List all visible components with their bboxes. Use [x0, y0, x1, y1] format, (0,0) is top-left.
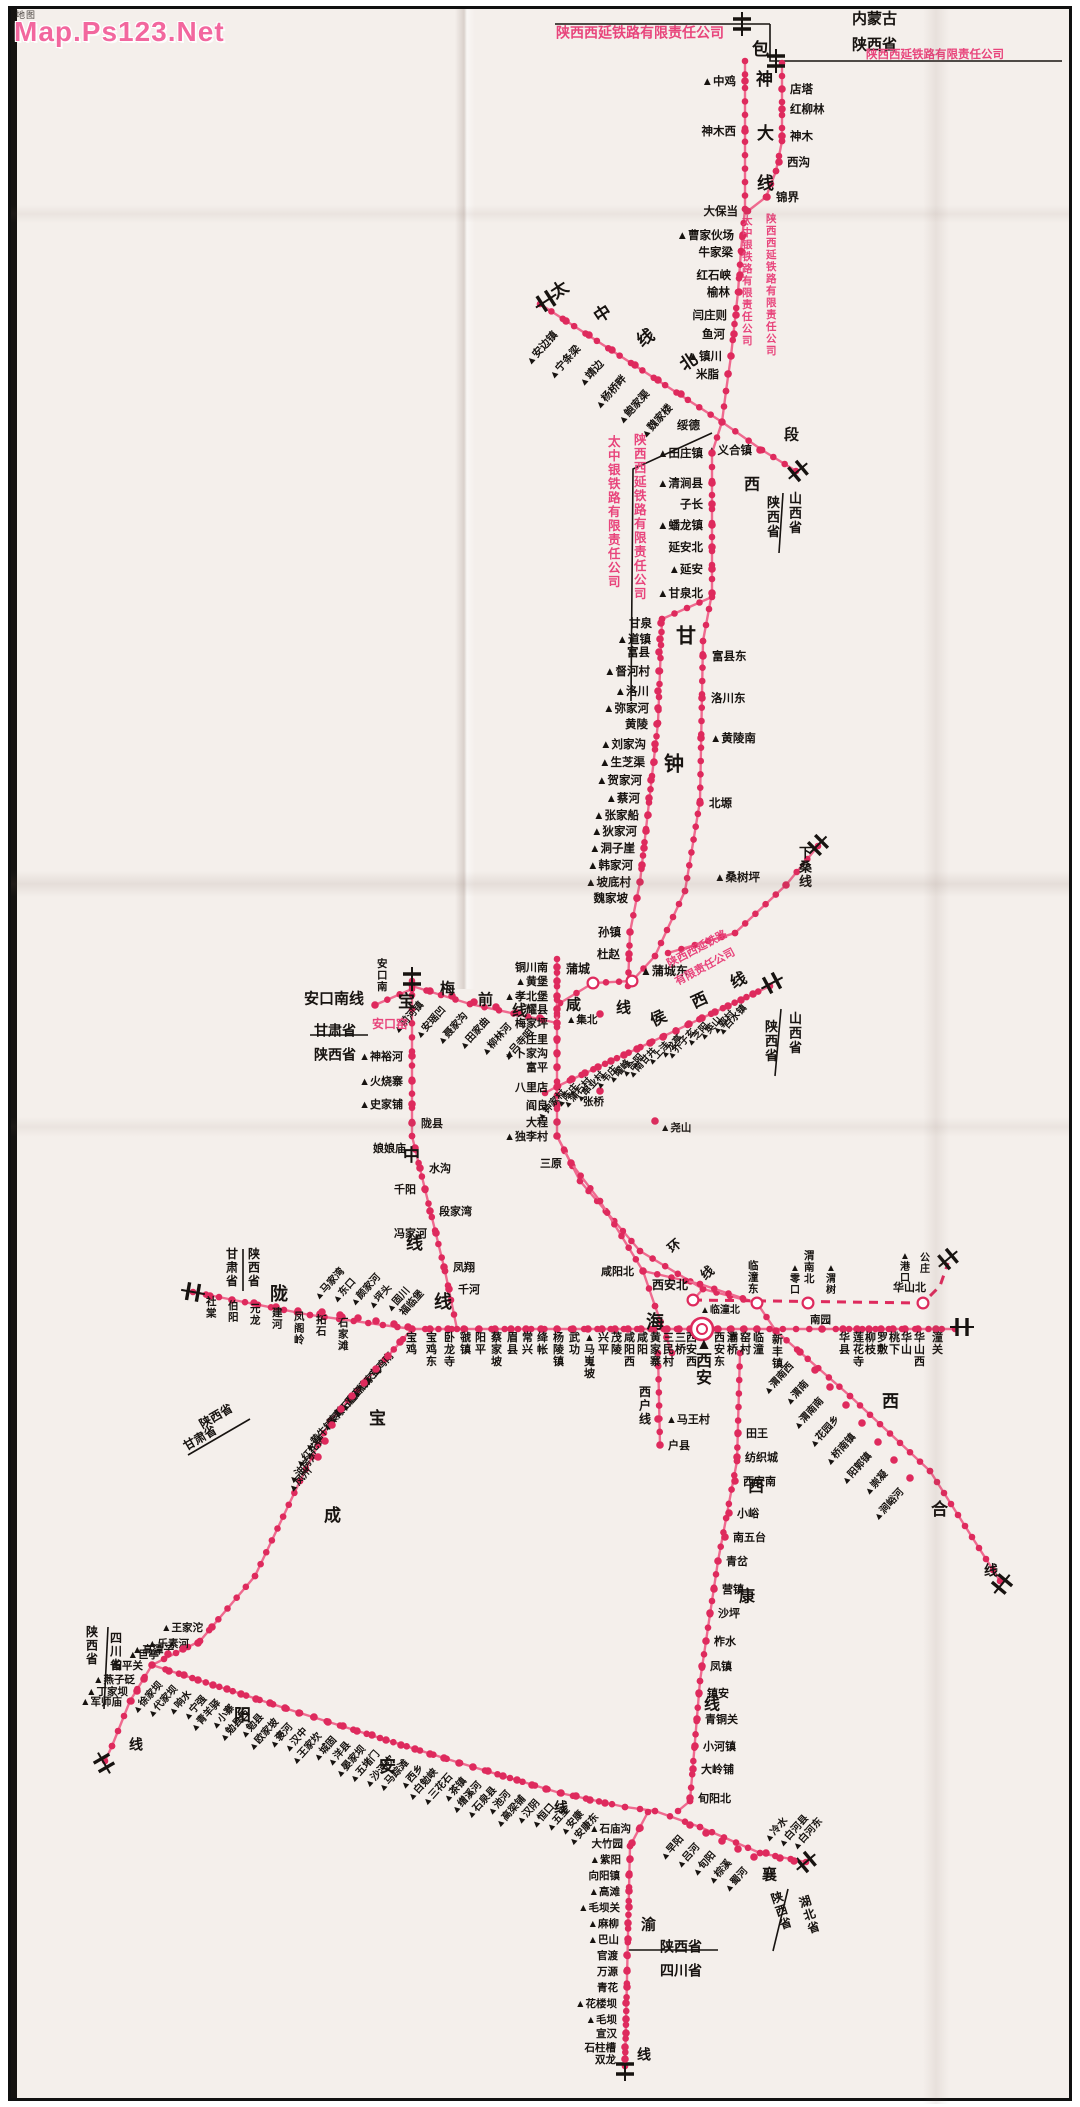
station-dot	[368, 1731, 376, 1739]
station-label: ▲田庄镇	[657, 446, 703, 460]
station-dot	[440, 1263, 448, 1271]
station-label: 旬阳北	[697, 1791, 731, 1805]
rail-bead	[435, 1241, 442, 1248]
rail-bead	[626, 942, 633, 949]
station-dot	[782, 881, 790, 889]
station-label: ▲督河村	[604, 664, 650, 678]
rail-bead	[649, 1255, 656, 1262]
station-dot	[890, 1456, 898, 1464]
rail-bead	[697, 1281, 704, 1288]
station-dot	[656, 1441, 664, 1449]
rail-bead	[662, 382, 669, 389]
station-dot	[318, 1308, 326, 1316]
station-dot	[842, 1401, 850, 1409]
station-dot	[778, 85, 786, 93]
station-label: 南园	[810, 1313, 831, 1326]
rail-bead	[955, 1512, 962, 1519]
station-dot	[553, 963, 561, 971]
rail-bead	[409, 1062, 416, 1069]
rail-bead	[684, 875, 691, 882]
station-label: 石家滩	[337, 1317, 349, 1352]
station-dot	[763, 193, 771, 201]
map-label: 湖北省	[796, 1892, 821, 1936]
station-dot	[622, 2029, 630, 2037]
station-label: 甘泉	[629, 616, 652, 630]
rail-bead	[773, 891, 780, 898]
station-dot	[281, 1704, 289, 1712]
station-label: 八里店	[514, 1080, 548, 1094]
station-dot	[553, 1049, 561, 1057]
rail-bead	[698, 718, 705, 725]
station-dot	[686, 1794, 694, 1802]
map-label: 陕西省	[766, 495, 781, 539]
rail-bead	[705, 1624, 712, 1631]
rail-bead	[233, 1594, 240, 1601]
station-dot	[553, 1118, 561, 1126]
station-label: ▲马嵬坡	[584, 1332, 596, 1380]
station-label: 三民村	[663, 1331, 674, 1368]
rail-bead	[699, 678, 706, 685]
rail-bead	[703, 622, 710, 629]
station-dot	[695, 1689, 703, 1697]
map-label: 侯	[647, 1006, 670, 1030]
station-label: 神木西	[702, 124, 737, 138]
rail-bead	[962, 1523, 969, 1530]
map-label: 前	[478, 990, 493, 1008]
rail-bead	[554, 956, 561, 963]
map-label: 陕西省	[196, 1400, 235, 1431]
rail-bead	[877, 1421, 884, 1428]
map-label: 安口南线	[304, 989, 364, 1007]
company-label: 陕西西延铁路有限责任公司	[633, 432, 647, 601]
rail-bead	[384, 996, 391, 1003]
rail-bead	[742, 179, 749, 186]
station-dot	[180, 1671, 188, 1679]
station-dot	[706, 1609, 714, 1617]
station-label: ▲尧山	[660, 1121, 691, 1134]
rail-bead	[781, 461, 788, 468]
station-label: 锦界	[776, 190, 799, 204]
rail-bead	[269, 1537, 276, 1544]
rail-bead	[425, 1200, 432, 1207]
rail-bead	[736, 1363, 743, 1370]
map-label: 中	[590, 300, 615, 326]
rail-bead	[224, 1605, 231, 1612]
station-dot	[382, 1736, 390, 1744]
station-label: 桃下	[889, 1330, 900, 1356]
rail-bead	[742, 920, 749, 927]
station-label: 社棠	[205, 1295, 217, 1320]
rail-bead	[697, 771, 704, 778]
station-dot	[625, 950, 633, 958]
station-label: 灞桥	[727, 1330, 739, 1356]
map-label: 线	[406, 1233, 423, 1253]
rail-bead	[742, 58, 749, 65]
rail-bead	[726, 1501, 733, 1508]
station-dot-major-inner	[697, 1324, 707, 1334]
station-dot	[677, 390, 685, 398]
station-dot	[372, 1317, 380, 1325]
station-dot	[650, 758, 658, 766]
station-dot	[371, 1001, 379, 1009]
station-dot	[654, 704, 662, 712]
station-dot	[148, 1661, 156, 1669]
station-label: 凤阁岭	[294, 1311, 305, 1346]
map-label: 内蒙古	[852, 9, 897, 27]
station-label: 宝鸡东	[425, 1330, 437, 1368]
rail-bead	[652, 1808, 659, 1815]
map-label: 神	[756, 69, 773, 89]
station-label: 新丰镇	[772, 1332, 783, 1370]
station-label: ▲张家船	[593, 808, 639, 822]
map-label: 襄	[761, 1865, 778, 1883]
rail-bead	[701, 1651, 708, 1658]
station-dot	[633, 894, 641, 902]
station-label: 万源	[596, 1965, 618, 1978]
station-label: ▲孝北堡	[504, 989, 548, 1003]
station-label: 华县	[839, 1330, 850, 1356]
station-dot	[553, 992, 561, 1000]
line-terminus-icon	[950, 1318, 974, 1336]
station-dot	[826, 1383, 834, 1391]
rail-bead	[451, 1311, 458, 1318]
station-dot-interchange	[803, 1298, 814, 1309]
map-label: 陕西省	[85, 1624, 98, 1666]
station-dot	[874, 1438, 882, 1446]
rail-bead	[717, 1543, 724, 1550]
station-dot	[702, 1829, 710, 1837]
station-dot	[636, 1824, 644, 1832]
station-label: 柳枝	[864, 1330, 877, 1356]
map-label: 海	[646, 1311, 664, 1332]
station-dot	[553, 1132, 561, 1140]
rail-bead	[667, 1813, 674, 1820]
station-dot	[733, 1453, 741, 1461]
rail-bead	[216, 1684, 223, 1691]
station-label: 青铜关	[705, 1712, 738, 1726]
map-label: 环	[664, 1236, 684, 1256]
map-label: 成	[324, 1505, 341, 1525]
station-label: 茂陵	[611, 1330, 623, 1356]
site-watermark: Map.Ps123.Net	[14, 16, 225, 48]
station-dot	[811, 1366, 819, 1374]
rail-bead	[742, 152, 749, 159]
station-dot	[725, 1509, 733, 1517]
rail-bead	[897, 1440, 904, 1447]
station-label: ▲马王村	[666, 1412, 710, 1426]
station-dot	[469, 1763, 477, 1771]
station-dot	[408, 1100, 416, 1108]
station-dot	[906, 1474, 914, 1482]
station-dot	[642, 827, 650, 835]
rail-bead	[203, 1679, 210, 1686]
rail-bead	[709, 492, 716, 499]
station-dot	[741, 77, 749, 85]
station-dot	[353, 1727, 361, 1735]
station-label: 蒲城	[566, 961, 590, 976]
station-dot	[621, 2055, 629, 2063]
station-label: ▲道镇	[617, 632, 652, 646]
map-label: 合	[931, 1499, 949, 1519]
station-label: ▲韩家河	[587, 858, 633, 872]
station-dot	[708, 479, 716, 487]
rail-bead	[215, 1616, 222, 1623]
station-dot	[622, 1999, 630, 2007]
map-label: 安	[379, 1756, 396, 1776]
station-label: ▲弥家河	[603, 701, 649, 715]
rail-bead	[280, 1513, 287, 1520]
station-label: 段家湾	[439, 1204, 472, 1218]
station-dot	[731, 1477, 739, 1485]
station-dot	[656, 635, 664, 643]
map-label: 包	[752, 39, 769, 59]
station-dot	[655, 667, 663, 675]
station-dot	[408, 1052, 416, 1060]
station-dot	[741, 127, 749, 135]
station-label: 田王	[746, 1427, 768, 1440]
station-label: ▲洞子崖	[589, 841, 635, 855]
station-dot	[721, 1533, 729, 1541]
rail-bead	[561, 1146, 568, 1153]
map-label: 陇	[270, 1283, 288, 1304]
station-dot	[655, 648, 663, 656]
station-label: 杨陵镇	[553, 1330, 565, 1368]
station-dot	[651, 1117, 659, 1125]
station-dot	[328, 1421, 336, 1429]
station-label: ▲安边镇	[523, 328, 561, 368]
rail-bead	[925, 1326, 932, 1333]
rail-bead	[695, 811, 702, 818]
station-dot-interchange	[752, 1298, 763, 1309]
station-label: 临潼东	[748, 1259, 759, 1295]
rail-bead	[616, 352, 623, 359]
station-dot	[408, 1119, 416, 1127]
station-label: 潼关	[932, 1330, 943, 1356]
rail-bead	[656, 1389, 663, 1396]
station-label: 娘娘庙	[373, 1141, 406, 1155]
rail-bead	[783, 1337, 790, 1344]
rail-bead	[742, 112, 749, 119]
map-label: 线	[697, 1263, 717, 1283]
station-dot	[608, 346, 616, 354]
station-dot	[653, 720, 661, 728]
company-label: 陕西西延铁路有限责任公司	[765, 212, 777, 357]
station-label: 窑村	[740, 1330, 751, 1356]
station-dot	[528, 1781, 536, 1789]
station-label: 庄里	[526, 1032, 548, 1046]
station-dot	[354, 1314, 362, 1322]
station-label: 红柳林	[790, 102, 825, 116]
station-label: ▲神裕河	[359, 1049, 403, 1063]
rail-bead	[409, 1133, 416, 1140]
station-label: ▲独李村	[504, 1129, 548, 1143]
rail-bead	[983, 1556, 990, 1563]
rail-bead	[762, 901, 769, 908]
rail-bead	[733, 1839, 740, 1846]
station-label: 宣汉	[596, 2027, 617, 2040]
rail-bead	[696, 599, 703, 606]
rail-bead	[700, 638, 707, 645]
station-dot	[657, 619, 665, 627]
station-dot	[553, 1063, 561, 1071]
map-label: 陕西省	[247, 1246, 260, 1288]
station-dot	[384, 1352, 392, 1360]
station-label: 向阳镇	[589, 1869, 621, 1882]
station-label: ▲清涧县	[657, 476, 703, 490]
station-dot	[562, 317, 570, 325]
rail-bead	[688, 849, 695, 856]
station-label: ▲渭树	[826, 1263, 836, 1296]
station-label: 富县东	[712, 649, 747, 663]
station-label: ▲贺家河	[596, 773, 642, 787]
rail-bead	[694, 1704, 701, 1711]
station-dot	[698, 1662, 706, 1670]
rail-bead	[655, 1376, 662, 1383]
rail-bead	[742, 192, 749, 199]
station-label: 延安北	[668, 540, 704, 554]
station-label: 罗敷	[877, 1331, 889, 1356]
station-label: 石柱槽	[584, 2041, 617, 2054]
rail-bead	[709, 576, 716, 583]
station-dot	[708, 521, 716, 529]
rail-bead	[948, 1501, 955, 1508]
rail-bead	[242, 1299, 249, 1306]
map-label: 宝	[398, 991, 415, 1011]
rail-bead	[390, 1346, 397, 1353]
rail-bead	[742, 85, 749, 92]
station-dot	[348, 1392, 356, 1400]
station-label: 临潼	[753, 1330, 764, 1356]
station-dot	[421, 1185, 429, 1193]
rail-bead	[887, 1430, 894, 1437]
station-label: 榆林	[707, 285, 730, 299]
station-dot	[818, 1325, 826, 1333]
rail-bead	[640, 852, 647, 859]
station-label: ▲史家铺	[359, 1097, 403, 1111]
rail-bead	[623, 2008, 630, 2015]
rail-bead	[745, 437, 752, 444]
station-dot	[499, 1772, 507, 1780]
rail-bead	[725, 1290, 732, 1297]
rail-bead	[573, 990, 580, 997]
station-label: ▲港口	[900, 1251, 911, 1284]
map-label: 甘	[676, 625, 696, 648]
station-dot	[390, 1320, 398, 1328]
station-dot	[411, 1745, 419, 1753]
map-label: 四川省	[109, 1631, 122, 1672]
station-dot	[492, 1003, 500, 1011]
rail-bead	[735, 1417, 742, 1424]
map-label: 宝	[369, 1408, 386, 1428]
station-dot	[702, 1637, 710, 1645]
rail-bead	[656, 1429, 663, 1436]
station-label: 铜川南	[514, 960, 548, 974]
station-dot	[654, 376, 662, 384]
rail-bead	[732, 930, 739, 937]
station-label: 千河	[458, 1282, 480, 1296]
rail-bead	[742, 98, 749, 105]
station-dot	[553, 1019, 561, 1027]
station-label: ▲靖边	[576, 357, 607, 389]
station-dot	[194, 1639, 202, 1647]
map-label: 陕西省	[764, 1019, 779, 1063]
station-dot	[396, 1338, 404, 1346]
station-label: 蔡家坡	[490, 1330, 503, 1368]
station-dot	[360, 1379, 368, 1387]
rail-bead	[697, 784, 704, 791]
station-dot	[776, 1854, 784, 1862]
rail-bead	[690, 1758, 697, 1765]
station-dot	[730, 330, 738, 338]
rail-bead	[365, 1320, 372, 1327]
rail-bead	[645, 1809, 652, 1816]
rail-bead	[736, 1377, 743, 1384]
station-label: 绛帐	[537, 1330, 549, 1356]
rail-bead	[639, 367, 646, 374]
station-dot	[749, 990, 757, 998]
station-label: 大岭铺	[701, 1762, 734, 1776]
map-label: 山西省	[788, 1011, 802, 1055]
station-label: 耀县	[526, 1002, 548, 1016]
rail-bead	[734, 1444, 741, 1451]
rail-bead	[729, 337, 736, 344]
station-dot	[732, 311, 740, 319]
station-dot-interchange	[588, 978, 599, 989]
station-label: 米脂	[695, 367, 719, 381]
company-label: 安口窑	[372, 1016, 408, 1031]
rail-bead	[706, 606, 713, 613]
station-label: ▲洛川	[615, 684, 649, 698]
rail-bead	[654, 1271, 661, 1278]
rail-bead	[907, 1449, 914, 1456]
rail-bead	[745, 1845, 752, 1852]
station-dot	[696, 799, 704, 807]
station-label: 凤镇	[710, 1659, 732, 1673]
rail-bead	[633, 1256, 640, 1263]
map-label: 西	[688, 989, 710, 1012]
page-binding-strip	[11, 9, 17, 2098]
station-label: 眉县	[507, 1331, 518, 1356]
map-label: 西	[882, 1392, 899, 1411]
station-dot	[625, 1887, 633, 1895]
station-dot	[314, 1453, 322, 1461]
map-label: 线	[129, 1736, 143, 1752]
station-dot	[408, 1077, 416, 1085]
station-label: 青岔	[726, 1554, 749, 1568]
station-dot	[626, 928, 634, 936]
station-label: 咸阳	[637, 1330, 648, 1356]
station-label: 杜赵	[597, 947, 620, 961]
station-label: ▲桑树坪	[714, 870, 760, 884]
station-label: 小峪	[736, 1506, 760, 1520]
station-dot	[237, 1690, 245, 1698]
station-label: ▲渭南	[782, 1377, 812, 1408]
rail-bead	[711, 1285, 718, 1292]
station-label: 魏家坡	[593, 891, 629, 905]
rail-bead	[675, 1271, 682, 1278]
station-label: 元龙	[249, 1303, 261, 1327]
rail-bead	[699, 664, 706, 671]
map-label: 线	[637, 2046, 651, 2062]
rail-bead	[658, 940, 665, 947]
rail-bead	[728, 1486, 735, 1493]
station-dot	[756, 446, 764, 454]
rail-bead	[670, 914, 677, 921]
station-dot	[432, 1229, 440, 1237]
rail-bead	[597, 1198, 604, 1205]
rail-bead	[934, 1479, 941, 1486]
rail-bead	[806, 1326, 813, 1333]
